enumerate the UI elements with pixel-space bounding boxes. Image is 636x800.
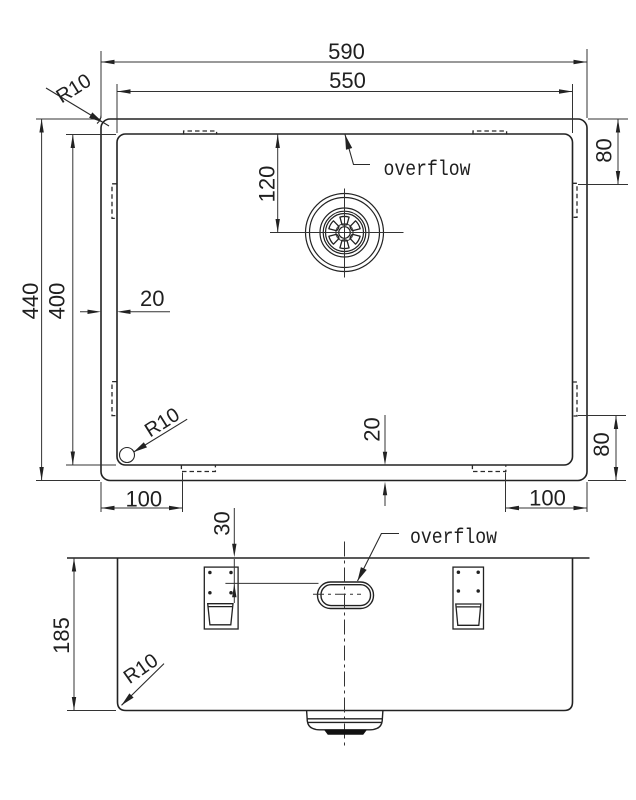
svg-text:overflow: overflow [410, 527, 497, 550]
svg-text:80: 80 [589, 432, 614, 456]
svg-text:185: 185 [49, 617, 74, 654]
svg-text:20: 20 [360, 417, 385, 441]
svg-text:100: 100 [529, 486, 566, 511]
svg-text:400: 400 [45, 283, 70, 320]
svg-text:overflow: overflow [384, 159, 471, 182]
svg-text:80: 80 [592, 138, 617, 162]
svg-text:20: 20 [140, 286, 164, 311]
svg-text:R10: R10 [141, 404, 184, 442]
svg-text:440: 440 [18, 283, 43, 320]
svg-text:R10: R10 [120, 650, 163, 689]
svg-text:30: 30 [210, 511, 235, 535]
svg-text:R10: R10 [52, 70, 95, 108]
svg-text:120: 120 [255, 166, 280, 203]
svg-text:590: 590 [328, 39, 365, 64]
svg-text:100: 100 [125, 487, 162, 512]
svg-text:550: 550 [329, 68, 366, 93]
